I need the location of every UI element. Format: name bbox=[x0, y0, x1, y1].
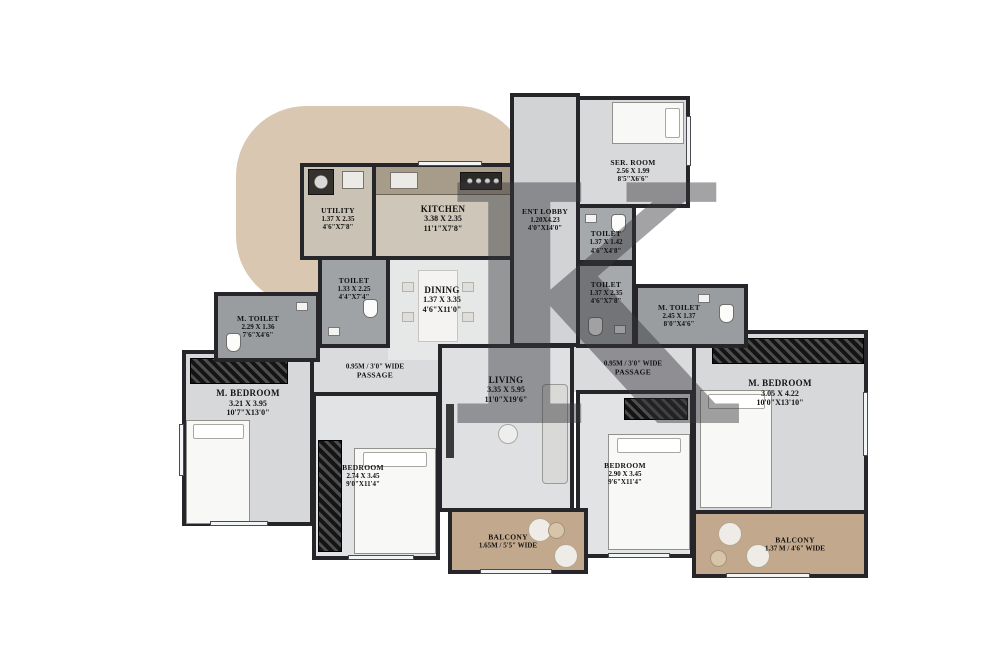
basin bbox=[296, 302, 308, 311]
room-dims-m: 3.05 X 4.22 bbox=[761, 389, 799, 399]
balcony-center: BALCONY 1.65M / 5'5" WIDE bbox=[448, 508, 588, 574]
room-name: SER. ROOM bbox=[610, 158, 655, 167]
basin bbox=[585, 214, 597, 223]
window bbox=[480, 569, 552, 574]
room-label: BEDROOM 2.74 X 3.45 9'0"X11'4" bbox=[290, 463, 436, 489]
room-bedroom-right: BEDROOM 2.90 X 3.45 9'6"X11'4" bbox=[576, 390, 694, 558]
basin bbox=[328, 327, 340, 336]
bed bbox=[612, 102, 684, 144]
room-label: DINING 1.37 X 3.35 4'6"X11'0" bbox=[374, 285, 510, 315]
room-master-bedroom-left: M. BEDROOM 3.21 X 3.95 10'7"X13'0" bbox=[182, 350, 314, 526]
room-master-toilet-left: M. TOILET 2.29 X 1.36 7'6"X4'6" bbox=[214, 292, 320, 362]
passage-label: 0.95M / 3'0" WIDE PASSAGE bbox=[574, 359, 692, 376]
room-dims-ft: 9'6"X11'4" bbox=[608, 479, 642, 487]
window bbox=[686, 116, 691, 166]
wc bbox=[588, 317, 603, 336]
room-dims-ft: 4'6"X4'8" bbox=[591, 247, 622, 255]
room-name: TOILET bbox=[591, 280, 621, 289]
room-label: LIVING 3.35 X 5.95 11'0"X19'6" bbox=[442, 375, 570, 405]
room-dims-m: 2.74 X 3.45 bbox=[346, 472, 379, 480]
passage-name: PASSAGE bbox=[357, 371, 393, 380]
room-master-bedroom-right: M. BEDROOM 3.05 X 4.22 10'0"X13'10" bbox=[692, 330, 868, 514]
passage-name: PASSAGE bbox=[615, 368, 651, 377]
room-dims-m: 2.45 X 1.37 bbox=[662, 312, 695, 320]
room-dims-m: 2.29 X 1.36 bbox=[241, 323, 274, 331]
room-dims-m: 1.37 X 3.35 bbox=[423, 295, 461, 305]
passage-width: 0.95M / 3'0" WIDE bbox=[346, 362, 404, 370]
balcony-right: BALCONY 1.37 M / 4'6" WIDE bbox=[692, 510, 868, 578]
kitchen-sink bbox=[390, 172, 418, 189]
basin bbox=[698, 294, 710, 303]
room-name: M. TOILET bbox=[237, 314, 279, 323]
room-ent-lobby: ENT LOBBY 1.20X4.23 4'0"X14'0" bbox=[510, 93, 580, 347]
room-dims-ft: 4'0"X14'0" bbox=[528, 225, 562, 233]
room-dims-ft: 11'1"X7'8" bbox=[424, 224, 463, 234]
room-dims-ft: 7'6"X4'6" bbox=[243, 332, 274, 340]
room-dims-m: 1.37 X 1.42 bbox=[589, 238, 622, 246]
window bbox=[348, 555, 414, 560]
window bbox=[608, 553, 670, 558]
room-dims-ft: 11'0"X19'6" bbox=[485, 395, 528, 405]
room-name: TOILET bbox=[339, 276, 369, 285]
room-dims-m: 3.35 X 5.95 bbox=[487, 385, 525, 395]
balcony-width: 1.65M / 5'5" WIDE bbox=[479, 541, 537, 549]
passage-width: 0.95M / 3'0" WIDE bbox=[604, 359, 662, 367]
window bbox=[179, 424, 184, 476]
balcony-name: BALCONY bbox=[488, 532, 528, 541]
wardrobe bbox=[624, 398, 688, 420]
room-label: TOILET 1.37 X 1.42 4'6"X4'8" bbox=[580, 229, 632, 255]
room-toilet-upper: TOILET 1.37 X 1.42 4'6"X4'8" bbox=[576, 204, 636, 264]
room-dims-ft: 8'5"X6'6" bbox=[618, 175, 649, 183]
room-label: TOILET 1.33 X 2.25 4'4"X7'4" bbox=[322, 276, 386, 302]
tv-unit bbox=[446, 404, 454, 458]
room-name: KITCHEN bbox=[421, 204, 466, 215]
room-dims-m: 3.38 X 2.35 bbox=[424, 214, 462, 224]
room-dims-m: 2.56 X 1.99 bbox=[616, 167, 649, 175]
hob bbox=[460, 172, 502, 190]
room-label: ENT LOBBY 1.20X4.23 4'0"X14'0" bbox=[514, 207, 576, 233]
passage-right: 0.95M / 3'0" WIDE PASSAGE bbox=[574, 344, 692, 392]
room-dims-m: 1.33 X 2.25 bbox=[337, 285, 370, 293]
wardrobe bbox=[318, 440, 342, 552]
window bbox=[418, 161, 482, 166]
floor-plan-canvas: 0.95M / 3'0" WIDE PASSAGE 0.95M / 3'0" W… bbox=[0, 0, 1000, 667]
room-dims-m: 3.21 X 3.95 bbox=[229, 399, 267, 409]
room-dims-ft: 10'7"X13'0" bbox=[226, 408, 269, 418]
passage-label: 0.95M / 3'0" WIDE PASSAGE bbox=[312, 362, 438, 379]
room-dims-m: 2.90 X 3.45 bbox=[608, 470, 641, 478]
utility-sink bbox=[342, 171, 364, 189]
room-dims-ft: 9'0"X11'4" bbox=[346, 481, 380, 489]
balcony-name: BALCONY bbox=[775, 535, 815, 544]
room-name: M. BEDROOM bbox=[216, 388, 280, 399]
room-name: BEDROOM bbox=[342, 463, 384, 472]
room-name: ENT LOBBY bbox=[522, 207, 568, 216]
room-dims-m: 1.37 X 2.35 bbox=[321, 215, 354, 223]
room-label: M. BEDROOM 3.05 X 4.22 10'0"X13'10" bbox=[696, 378, 864, 408]
coffee-table bbox=[498, 424, 518, 444]
room-utility: UTILITY 1.37 X 2.35 4'6"X7'8" bbox=[300, 163, 376, 260]
room-label: M. TOILET 2.29 X 1.36 7'6"X4'6" bbox=[200, 314, 316, 340]
room-name: UTILITY bbox=[321, 206, 355, 215]
room-dims-ft: 8'0"X4'6" bbox=[664, 321, 695, 329]
room-name: LIVING bbox=[489, 375, 524, 386]
room-dims-m: 1.37 X 2.35 bbox=[589, 289, 622, 297]
room-dims-ft: 4'4"X7'4" bbox=[339, 293, 370, 301]
balcony-label: BALCONY 1.65M / 5'5" WIDE bbox=[432, 532, 584, 549]
room-dims-ft: 4'6"X7'8" bbox=[323, 223, 354, 231]
room-dims-ft: 4'6"X11'0" bbox=[423, 305, 462, 315]
room-name: M. BEDROOM bbox=[748, 378, 812, 389]
washing-machine bbox=[308, 169, 334, 195]
balcony-table bbox=[710, 550, 727, 567]
room-servant-room: SER. ROOM 2.56 X 1.99 8'5"X6'6" bbox=[576, 96, 690, 208]
room-name: TOILET bbox=[591, 229, 621, 238]
room-label: KITCHEN 3.38 X 2.35 11'1"X7'8" bbox=[376, 204, 510, 234]
room-label: M. TOILET 2.45 X 1.37 8'0"X4'6" bbox=[614, 303, 744, 329]
room-name: M. TOILET bbox=[658, 303, 700, 312]
window bbox=[726, 573, 810, 578]
room-kitchen: KITCHEN 3.38 X 2.35 11'1"X7'8" bbox=[372, 163, 514, 260]
balcony-width: 1.37 M / 4'6" WIDE bbox=[765, 544, 825, 552]
room-label: TOILET 1.37 X 2.35 4'6"X7'8" bbox=[580, 280, 632, 306]
room-label: SER. ROOM 2.56 X 1.99 8'5"X6'6" bbox=[580, 158, 686, 184]
window bbox=[210, 521, 268, 526]
room-name: BEDROOM bbox=[604, 461, 646, 470]
bed bbox=[186, 420, 250, 524]
room-bedroom-left: BEDROOM 2.74 X 3.45 9'0"X11'4" bbox=[312, 392, 440, 560]
room-master-toilet-right: M. TOILET 2.45 X 1.37 8'0"X4'6" bbox=[634, 284, 748, 348]
room-label: BEDROOM 2.90 X 3.45 9'6"X11'4" bbox=[560, 461, 690, 487]
bed bbox=[608, 434, 690, 550]
room-name: DINING bbox=[424, 285, 459, 296]
room-dims-m: 1.20X4.23 bbox=[530, 216, 560, 224]
room-living: LIVING 3.35 X 5.95 11'0"X19'6" bbox=[438, 344, 574, 512]
room-dims-ft: 10'0"X13'10" bbox=[756, 398, 803, 408]
balcony-label: BALCONY 1.37 M / 4'6" WIDE bbox=[726, 535, 864, 552]
room-label: UTILITY 1.37 X 2.35 4'6"X7'8" bbox=[304, 206, 372, 232]
room-label: M. BEDROOM 3.21 X 3.95 10'7"X13'0" bbox=[186, 388, 310, 418]
